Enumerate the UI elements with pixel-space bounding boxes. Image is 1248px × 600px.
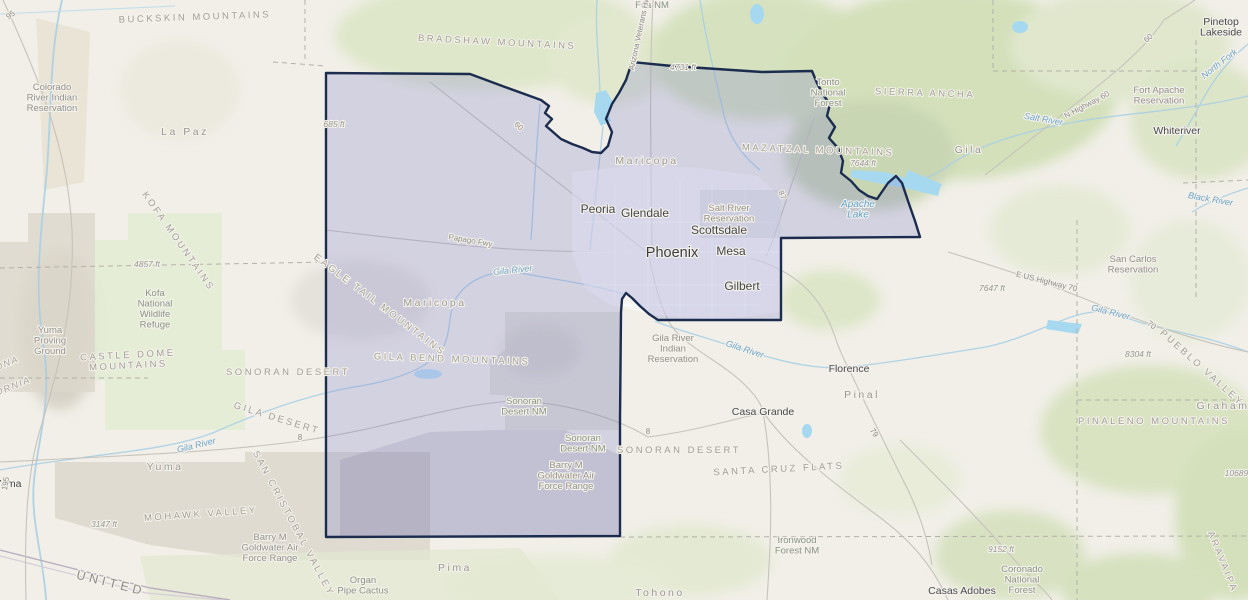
area-label-salt-river-reservation: Salt RiverReservation bbox=[704, 203, 755, 225]
citie-label-casas-adobes: Casas Adobes bbox=[928, 585, 996, 597]
elevation-label-7644-ft: 7644 ft bbox=[850, 158, 877, 168]
area-label-sonoran-desert-nm: SonoranDesert NM bbox=[501, 396, 546, 418]
small-lake-ne bbox=[1012, 21, 1028, 33]
citie-label-phoenix: Phoenix bbox=[646, 245, 699, 261]
map-viewport[interactable]: PhoenixMesaScottsdaleGlendalePeoriaGilbe… bbox=[0, 0, 1248, 600]
mountain-label-sonoran-desert: SONORAN DESERT bbox=[617, 445, 741, 456]
area-label-colorado-river-indian-reservation: ColoradoRiver IndianReservation bbox=[27, 82, 78, 114]
horseshoe-lake bbox=[750, 4, 764, 24]
countie-label-maricopa: Maricopa bbox=[403, 297, 466, 309]
elevation-label-8304-ft: 8304 ft bbox=[1125, 349, 1152, 359]
area-label-fort-apache-reservation: Fort ApacheReservation bbox=[1133, 85, 1184, 107]
countie-label-la-paz: La Paz bbox=[161, 126, 209, 138]
area-label-yuma-proving-ground: YumaProvingGround bbox=[34, 325, 66, 357]
citie-label-mesa: Mesa bbox=[716, 244, 746, 258]
elevation-label-9152-ft: 9152 ft bbox=[988, 544, 1015, 554]
countie-label-gila: Gila bbox=[955, 144, 984, 156]
countie-label-maricopa: Maricopa bbox=[615, 155, 678, 167]
small-pond bbox=[802, 424, 812, 438]
citie-label-gilbert: Gilbert bbox=[724, 279, 760, 293]
mountain-label-sonoran-desert: SONORAN DESERT bbox=[226, 367, 350, 378]
elevation-label-4857-ft: 4857 ft bbox=[134, 259, 161, 269]
road-label-8: 8 bbox=[298, 433, 303, 442]
citie-label-glendale: Glendale bbox=[621, 206, 669, 220]
mountain-label-pinaleno-mountains: PINALENO MOUNTAINS bbox=[1078, 416, 1230, 427]
area-label-ironwood-forest-nm: IronwoodForest NM bbox=[775, 535, 819, 557]
road-label-8: 8 bbox=[646, 427, 651, 436]
elevation-label-4731-ft: 4731 ft bbox=[670, 62, 697, 72]
countie-label-tohono: Tohono bbox=[635, 587, 684, 599]
countie-label-yuma: Yuma bbox=[147, 461, 184, 473]
citie-label-peoria: Peoria bbox=[581, 202, 616, 216]
elevation-label-10689-ft: 10689 ft bbox=[1225, 468, 1248, 478]
area-label-sonoran-desert-nm: SonoranDesert NM bbox=[560, 433, 605, 455]
citie-label-whiteriver: Whiteriver bbox=[1153, 125, 1201, 137]
elevation-label-685-ft: 685 ft bbox=[323, 119, 345, 129]
countie-label-pima: Pima bbox=[438, 562, 472, 574]
citie-label-casa-grande: Casa Grande bbox=[732, 406, 795, 418]
map-canvas[interactable]: PhoenixMesaScottsdaleGlendalePeoriaGilbe… bbox=[0, 0, 1248, 600]
countie-label-pinal: Pinal bbox=[844, 389, 880, 401]
elevation-label-3147-ft: 3147 ft bbox=[91, 519, 118, 529]
area-label-san-carlos-reservation: San CarlosReservation bbox=[1108, 254, 1159, 276]
elevation-label-7647-ft: 7647 ft bbox=[979, 283, 1006, 293]
citie-label-scottsdale: Scottsdale bbox=[691, 223, 747, 237]
citie-label-florence: Florence bbox=[829, 363, 870, 375]
citie-label-pinetop-lakeside: PinetopLakeside bbox=[1200, 16, 1242, 39]
